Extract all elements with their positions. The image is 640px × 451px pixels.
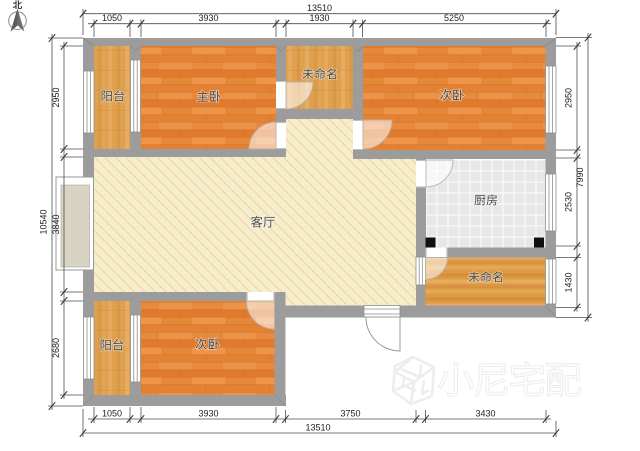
svg-text:2950: 2950 bbox=[51, 87, 61, 107]
svg-text:13510: 13510 bbox=[305, 423, 330, 433]
svg-text:13510: 13510 bbox=[307, 3, 332, 13]
svg-text:1430: 1430 bbox=[564, 272, 574, 292]
svg-text:3930: 3930 bbox=[198, 409, 218, 419]
svg-text:3430: 3430 bbox=[475, 409, 495, 419]
svg-text:3750: 3750 bbox=[340, 409, 360, 419]
svg-text:2530: 2530 bbox=[564, 192, 574, 212]
svg-text:1930: 1930 bbox=[309, 13, 329, 23]
svg-text:7990: 7990 bbox=[575, 167, 585, 187]
svg-text:1050: 1050 bbox=[102, 409, 122, 419]
svg-text:5250: 5250 bbox=[444, 13, 464, 23]
svg-text:10540: 10540 bbox=[39, 209, 49, 234]
svg-text:3840: 3840 bbox=[51, 214, 61, 234]
svg-text:3930: 3930 bbox=[198, 13, 218, 23]
svg-text:1050: 1050 bbox=[102, 13, 122, 23]
svg-text:2950: 2950 bbox=[564, 88, 574, 108]
svg-text:2680: 2680 bbox=[51, 338, 61, 358]
